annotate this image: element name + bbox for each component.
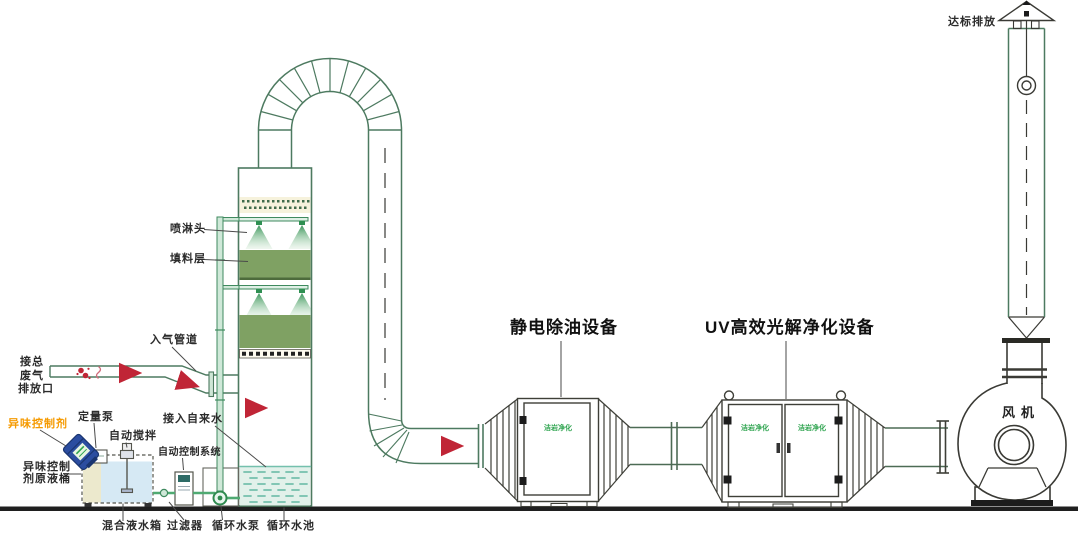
spray-head-label: 喷淋头: [170, 223, 206, 236]
fan-label: 风机: [1002, 406, 1040, 421]
circulating-pool-label: 循环水池: [267, 520, 315, 533]
outlet-cone: [599, 399, 631, 501]
mixing-tank-label: 混合液水箱: [102, 520, 162, 533]
hinge: [724, 476, 732, 484]
ground-line: [0, 507, 1078, 512]
brand-logo: 洁岩净化: [790, 425, 834, 432]
stack-flange: [1002, 338, 1050, 343]
diagram-canvas: [0, 0, 1080, 543]
exhaust-stack: [999, 1, 1054, 318]
packing-layer-upper: [240, 250, 311, 280]
auto-control-system-label: 自动控制系统: [158, 447, 221, 459]
filter-label: 过滤器: [167, 520, 203, 533]
auto-stir-label: 自动搅拌: [109, 430, 157, 443]
duct-es-to-uv: [630, 422, 702, 470]
hinge: [835, 476, 843, 484]
demister-band: [240, 197, 311, 213]
tap-water-label: 接入自来水: [163, 413, 223, 426]
hinge: [520, 477, 527, 485]
waste-gas-label-line1: 接总: [20, 356, 44, 369]
circulating-pump-symbol: [214, 492, 227, 505]
uv-unit: [702, 391, 885, 508]
dosing-pump-label: 定量泵: [78, 411, 114, 424]
duct-uv-to-fan: [885, 421, 949, 473]
spray-tower: [239, 168, 316, 506]
control-cabinet: [175, 472, 193, 505]
inlet-cone: [485, 399, 518, 501]
lifting-ring: [725, 391, 734, 400]
electrostatic-unit-title: 静电除油设备: [510, 318, 618, 338]
support-grid: [240, 350, 311, 359]
waste-gas-label-line2: 废气: [20, 370, 44, 383]
uv-unit-title: UV高效光解净化设备: [705, 318, 875, 338]
outlet-cone: [847, 400, 885, 502]
hinge: [724, 417, 732, 425]
fan-foundation: [971, 500, 1053, 506]
compliant-emission-label: 达标排放: [948, 16, 996, 29]
agent-barrel-label-line1: 异味控制: [23, 461, 71, 474]
fan-scroll: [958, 383, 1066, 500]
door-handle: [777, 443, 781, 453]
packing-layer-label: 填料层: [170, 253, 206, 266]
hinge: [520, 416, 527, 424]
sampling-port: [1018, 77, 1036, 95]
lifting-ring: [837, 391, 846, 400]
inlet-duct-label: 入气管道: [150, 334, 198, 347]
hinge: [835, 417, 843, 425]
packing-layer-lower: [240, 315, 311, 348]
waste-gas-inlet-duct: [50, 366, 239, 397]
brand-logo: 洁岩净化: [733, 425, 777, 432]
circulating-pool: [240, 466, 311, 506]
electrostatic-unit: [485, 399, 630, 507]
inlet-cone: [702, 400, 722, 502]
door-handle: [787, 443, 791, 453]
waste-gas-label-line3: 排放口: [18, 383, 54, 396]
waste-gas-treatment-diagram: 接总 废气 排放口 入气管道 喷淋头 填料层 异味控制剂 定量泵 自动搅拌 自动…: [0, 0, 1080, 543]
agent-barrel-label-line2: 剂原液桶: [23, 473, 71, 486]
inline-filter: [160, 489, 167, 496]
brand-logo: 洁岩净化: [532, 425, 584, 432]
circulating-pump-label: 循环水泵: [212, 520, 260, 533]
odor-control-agent-label: 异味控制剂: [8, 418, 68, 431]
